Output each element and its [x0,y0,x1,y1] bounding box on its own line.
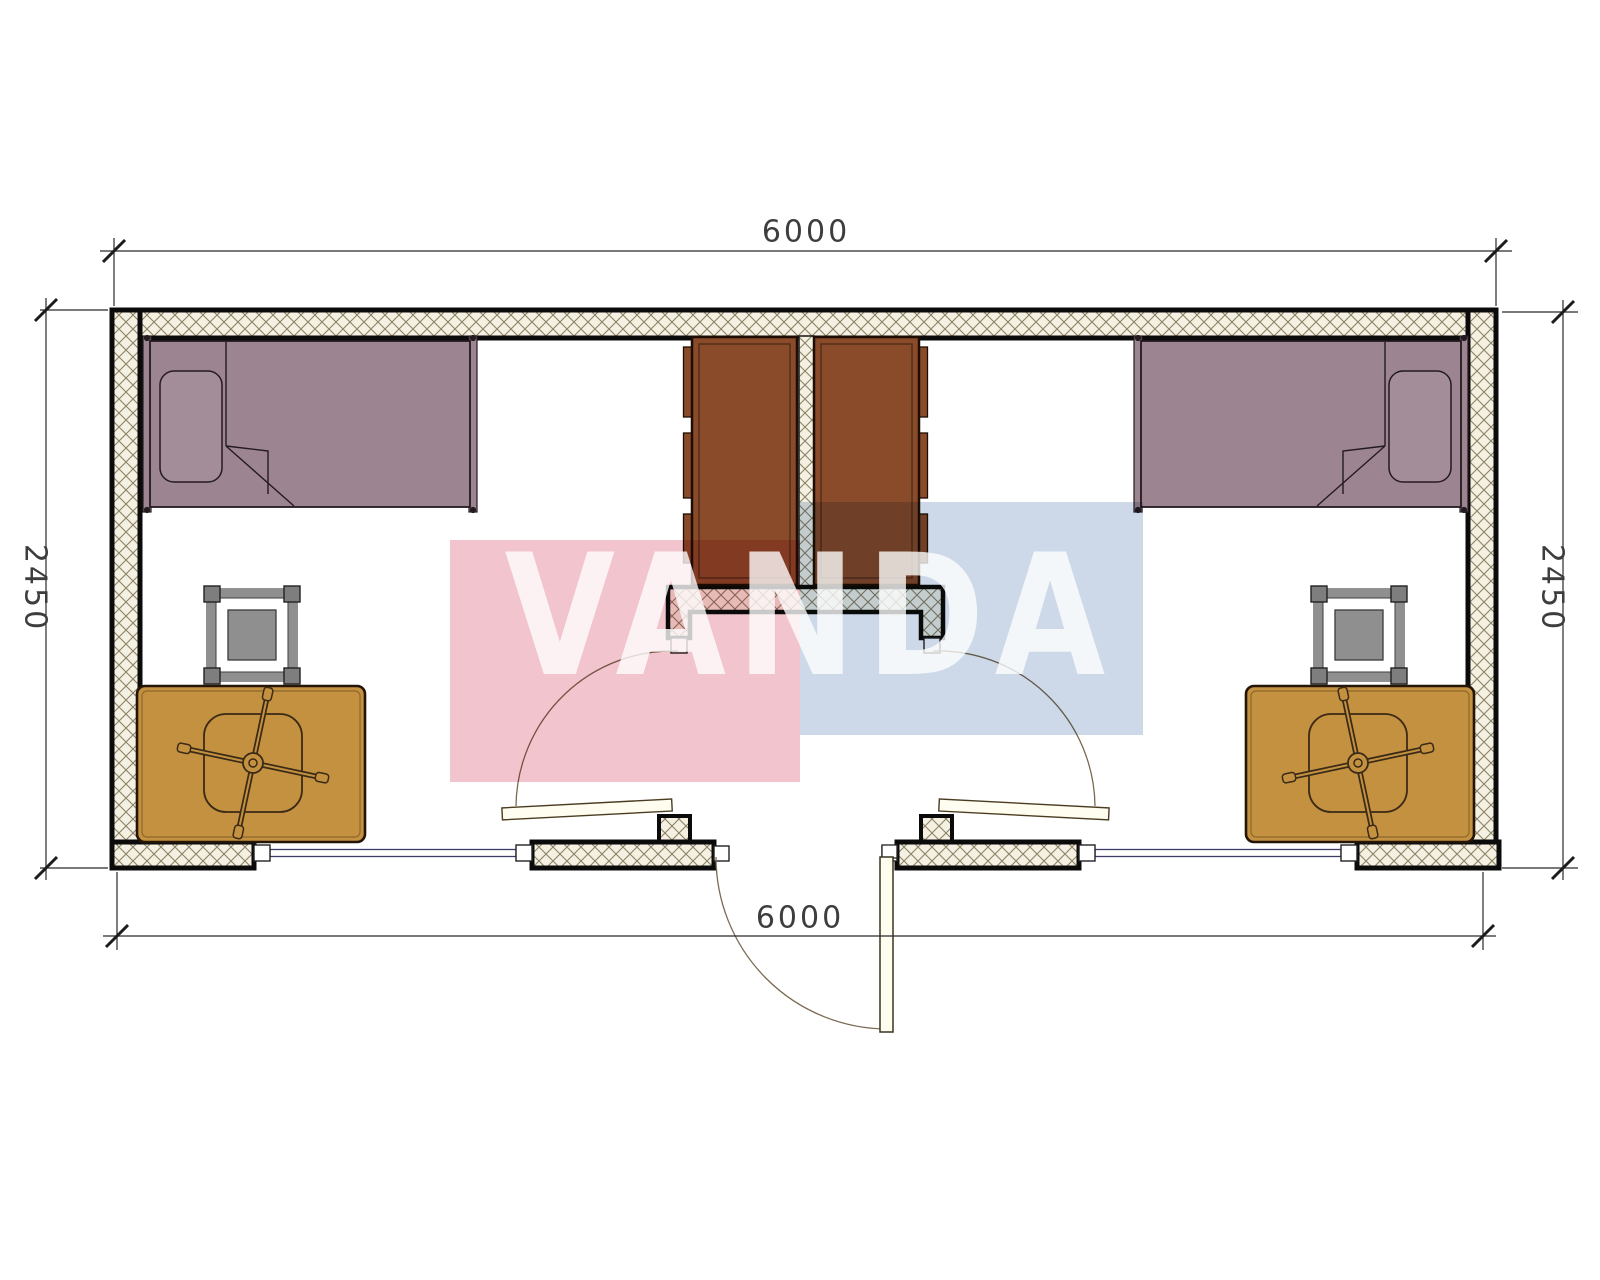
entry-door-swing-arc [716,857,888,1029]
single-bed [143,335,477,512]
window-glazing [270,850,516,857]
left-dimension-label: 2450 [18,544,53,632]
entry-door-leaf [880,857,893,1032]
table-top [228,610,276,660]
entry-door-hinge-jamb [882,845,897,858]
window-jamb-icon [254,845,270,861]
top-wall [112,310,1496,338]
floor-plan-page: VANDA 6000 6000 2450 2450 [0,0,1600,1280]
entry-door [716,845,897,1032]
bottom-mid-wall [532,842,714,868]
pillow [160,371,222,482]
watermark-logo-text: VANDA [505,532,1116,700]
right-dimension-label: 2450 [1535,544,1570,632]
top-dimension-label: 6000 [762,215,850,250]
side-table [204,586,300,684]
bottom-corner-wall [112,842,254,868]
window-jamb-icon [516,845,532,861]
window [254,845,532,861]
bottom-dimension-label: 6000 [756,901,844,936]
door-leaf [502,799,672,820]
